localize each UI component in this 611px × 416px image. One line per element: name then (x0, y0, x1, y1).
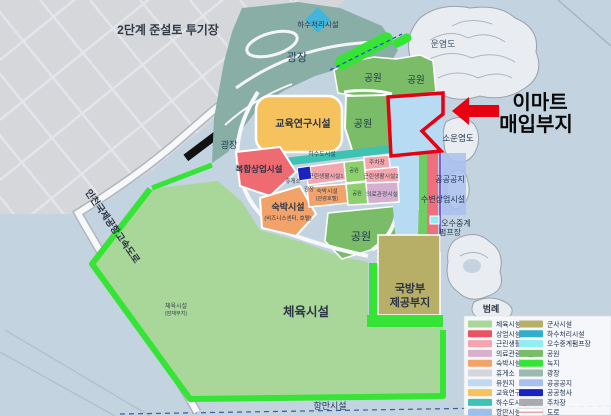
legend-label-오수중계펌프장: 오수중계펌프장 (547, 339, 591, 348)
legend-swatch-근린생활시설 (468, 340, 492, 347)
map-label-medical-tourism: 의료관광시설 (366, 190, 398, 198)
legend-swatch-상업시설 (468, 330, 492, 337)
map-label-plaza-small: 광장 (304, 186, 314, 193)
legend-label-도로: 도로 (547, 409, 560, 416)
plan-map: 이마트 매입부지 2단계 준설토 투기장하수처리시설운염도광장공원공원공원교육연… (0, 0, 611, 416)
legend-swatch-하수도시설 (468, 399, 492, 406)
map-label-park-top-2: 공원 (407, 75, 424, 86)
map-label-port: 항만시설 (313, 401, 346, 411)
map-label-park-mini-1: 공원 (349, 166, 359, 174)
legend-swatch-유원지 (468, 379, 492, 386)
legend-swatch-교육연구시설 (468, 389, 492, 396)
legend-label-하수처리시설: 하수처리시설 (547, 329, 585, 338)
legend-label-유원지: 유원지 (496, 378, 515, 387)
map-label-unyeomdo: 운염도 (431, 39, 456, 49)
legend-label-상업시설: 상업시설 (496, 329, 521, 338)
map-label-sewer-band: 하수도시설 (308, 150, 336, 158)
legend-swatch-하수처리시설 (519, 330, 543, 337)
legend-title: 범례 (483, 303, 500, 314)
map-label-hotel-tour-2: (관광호텔) (316, 194, 339, 202)
map-label-hotel-biz-2: (비즈니스센터, 호텔) (264, 214, 311, 222)
legend-label-녹지: 녹지 (547, 359, 560, 368)
legend-label-공공공지: 공공공지 (547, 378, 572, 387)
map-label-sewage-treatment: 하수처리시설 (297, 19, 338, 29)
map-label-hotel-tour-1: 숙박시설 (316, 187, 337, 195)
map-label-commercial-complex: 복합상업시설 (236, 164, 283, 174)
map-label-pump-station-2: 펌프장 (439, 227, 462, 237)
legend-swatch-공원 (519, 350, 543, 357)
legend-swatch-녹지 (519, 360, 543, 367)
legend-swatch-군사시설 (519, 321, 543, 328)
legend-label-주차장: 주차장 (547, 398, 566, 407)
map-label-parking: 주차장 (369, 158, 386, 166)
map-label-park-mid: 공원 (351, 230, 371, 243)
map-label-sports-big: 체육시설 (283, 304, 329, 319)
map-label-plaza-west: 광장 (221, 139, 238, 150)
greenery-band-left (369, 263, 377, 322)
map-label-defense-2: 제공부지 (390, 295, 430, 309)
legend-label-체육시설: 체육시설 (496, 321, 521, 329)
legend-swatch-오수중계펌프장 (519, 340, 543, 347)
legend-swatch-의료관광시설 (468, 350, 492, 357)
legend-label-군사시설: 군사시설 (547, 320, 572, 329)
map-label-sports-small-1: 체육시설 (165, 302, 187, 310)
map-label-park-mini-2: 공원 (352, 189, 362, 197)
legend-swatch-휴게소 (468, 370, 492, 377)
map-label-neighborhood-1: 근린생활시설1 (308, 172, 343, 180)
map-label-pump-station-1: 오수중계 (441, 218, 470, 228)
map-label-neighborhood-2: 근린생활시설2 (363, 172, 398, 180)
map-label-plaza-main: 광장 (287, 51, 307, 64)
legend-label-공원: 공원 (547, 349, 560, 358)
legend-label-숙박시설: 숙박시설 (496, 359, 521, 368)
map-label-rest-area: 휴게소 (285, 177, 300, 185)
map-label-park-top-1: 공원 (364, 73, 381, 84)
legend-swatch-항만시설 (468, 409, 492, 416)
legend: 범례 체육시설상업시설근린생활시설의료관광시설숙박시설휴게소유원지교육연구시설하… (464, 303, 611, 416)
legend-swatch-공공청사 (519, 389, 543, 396)
legend-swatch-체육시설 (468, 321, 492, 328)
map-label-public-open-space: 공공공지 (435, 175, 464, 184)
plan-map-image: 이마트 매입부지 2단계 준설토 투기장하수처리시설운염도광장공원공원공원교육연… (0, 0, 611, 416)
legend-swatch-공공공지 (519, 379, 543, 386)
map-label-defense-1: 국방부 (395, 281, 425, 295)
map-label-education: 교육연구시설 (275, 117, 330, 130)
greenery-band-bottom (367, 315, 443, 327)
map-label-sounyeomdo: 소운염도 (442, 133, 473, 143)
map-label-waterfront-commercial: 수변상업시설 (421, 194, 465, 204)
map-label-dredge-site: 2단계 준설토 투기장 (117, 22, 219, 37)
callout-line1: 이마트 (512, 91, 567, 114)
legend-swatch-광장 (519, 370, 543, 377)
pump-station-block (430, 216, 439, 224)
map-label-park-east: 공원 (354, 118, 372, 130)
legend-swatch-주차장 (519, 399, 543, 406)
legend-label-항만시설: 항만시설 (496, 408, 521, 416)
legend-label-공공청사: 공공청사 (547, 388, 573, 397)
map-label-sports-small-2: (잠재부지) (165, 309, 188, 317)
callout-line2: 매입부지 (499, 113, 573, 136)
legend-label-휴게소: 휴게소 (496, 369, 515, 378)
public-open-space-area (442, 153, 466, 215)
legend-label-광장: 광장 (547, 369, 560, 378)
legend-swatch-숙박시설 (468, 360, 492, 367)
map-label-hotel-biz-1: 숙박시설 (271, 201, 304, 212)
